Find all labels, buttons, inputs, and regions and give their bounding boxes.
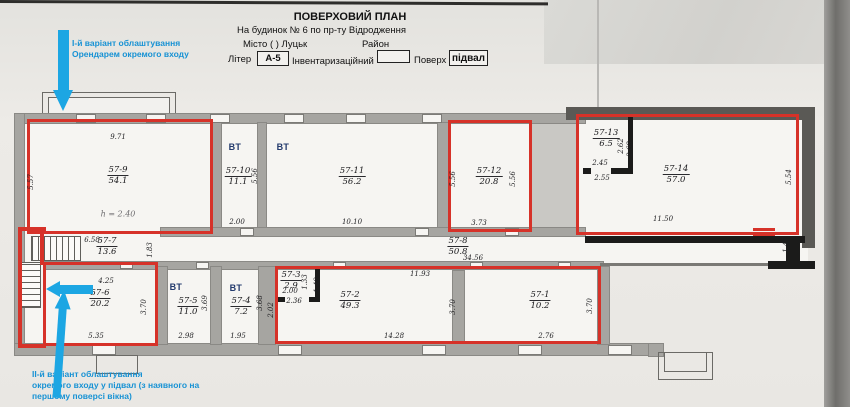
- dimension-label: 6.58: [84, 236, 100, 244]
- room-area: 13.6: [96, 247, 117, 257]
- room-area: 6.5: [593, 139, 620, 149]
- room-number: 57-11: [339, 167, 366, 177]
- room-area: 57.0: [663, 175, 690, 185]
- room-number: 57-4: [230, 297, 251, 307]
- dimension-label: 9.71: [110, 133, 126, 141]
- annotation-variant1: І-й варіант облаштування Орендарем окрем…: [72, 38, 189, 60]
- dimension-label: 14.28: [384, 332, 404, 340]
- dimension-label: 1.49: [313, 277, 321, 293]
- room-number: 57-13: [593, 129, 620, 139]
- room-number: 57-3: [280, 271, 301, 281]
- room-tag-vt: ВТ: [230, 283, 243, 293]
- dimension-label: 3.73: [471, 219, 487, 227]
- dimension-label: 11.93: [410, 270, 430, 278]
- dimension-label: 3.70: [140, 299, 148, 315]
- room-area: 20.8: [476, 177, 503, 187]
- room-label-57-5: 57-511.0: [177, 296, 198, 317]
- dimension-label: 1.95: [230, 332, 246, 340]
- dimension-label: 3.70: [449, 299, 457, 315]
- dimension-label: 2.55: [594, 174, 610, 182]
- dimension-label: 5.56: [251, 168, 259, 184]
- room-tag-vt: ВТ: [170, 282, 183, 292]
- room-label-57-10: 57-1011.1: [225, 166, 252, 187]
- room-number: 57-5: [177, 297, 198, 307]
- room-area: 11.1: [225, 177, 252, 187]
- room-number: 57-9: [107, 166, 128, 176]
- dimension-label: 2.00: [229, 218, 245, 226]
- dimension-label: 2.36: [286, 297, 302, 305]
- dimension-label: 5.56: [509, 171, 517, 187]
- label-layer: 57-954.157-1011.157-1156.257-1220.857-13…: [0, 0, 850, 407]
- room-number: 57-12: [476, 167, 503, 177]
- dimension-label: 1.83: [146, 242, 154, 258]
- room-number: 57-14: [663, 165, 690, 175]
- dimension-label: 2.76: [538, 332, 554, 340]
- dimension-label: 34.56: [463, 254, 483, 262]
- room-area: 10.2: [529, 301, 550, 311]
- floor-plan: 57-954.157-1011.157-1156.257-1220.857-13…: [0, 0, 850, 407]
- room-label-57-13: 57-136.5: [593, 128, 620, 149]
- dimension-label: 2.00: [282, 287, 298, 295]
- dimension-label: 5.57: [27, 174, 35, 190]
- room-area: 56.2: [339, 177, 366, 187]
- room-tag-vt: ВТ: [229, 142, 242, 152]
- room-tag-vt: ВТ: [277, 142, 290, 152]
- dimension-label: 5.35: [88, 332, 104, 340]
- room-area: 49.3: [339, 301, 360, 311]
- room-area: 7.2: [230, 307, 251, 317]
- room-label-57-9: 57-954.1: [107, 165, 128, 186]
- dimension-label: 2.98: [178, 332, 194, 340]
- dimension-label: 2.68: [626, 141, 634, 157]
- room-label-57-11: 57-1156.2: [339, 166, 366, 187]
- dimension-label: 2.02: [267, 302, 275, 318]
- dimension-label: 2.62: [617, 138, 625, 154]
- dimension-label: 11.50: [653, 215, 673, 223]
- dimension-label: 3.70: [586, 298, 594, 314]
- dimension-label: 5.54: [785, 169, 793, 185]
- room-label-57-4: 57-47.2: [230, 296, 251, 317]
- arrow-variant1-entrance: [52, 30, 76, 112]
- dimension-label: 3.69: [201, 295, 209, 311]
- dimension-label: 10.10: [342, 218, 362, 226]
- annotation-line: І-й варіант облаштування: [72, 38, 189, 49]
- height-note: h = 2.40: [101, 210, 136, 219]
- dimension-label: 1.47: [782, 237, 790, 253]
- room-number: 57-2: [339, 291, 360, 301]
- room-label-57-12: 57-1220.8: [476, 166, 503, 187]
- room-number: 57-10: [225, 167, 252, 177]
- dimension-label: 5.56: [449, 171, 457, 187]
- annotation-line: Орендарем окремого входу: [72, 49, 189, 60]
- dimension-label: 3.68: [256, 295, 264, 311]
- room-area: 54.1: [107, 176, 128, 186]
- dimension-label: 2.45: [592, 159, 608, 167]
- room-label-57-1: 57-110.2: [529, 290, 550, 311]
- room-area: 20.2: [89, 299, 110, 309]
- room-label-57-2: 57-249.3: [339, 290, 360, 311]
- dimension-label: 1.33: [301, 274, 309, 290]
- room-number: 57-1: [529, 291, 550, 301]
- room-label-57-14: 57-1457.0: [663, 164, 690, 185]
- dimension-label: 4.25: [98, 277, 114, 285]
- room-number: 57-8: [447, 237, 468, 247]
- room-area: 11.0: [177, 307, 198, 317]
